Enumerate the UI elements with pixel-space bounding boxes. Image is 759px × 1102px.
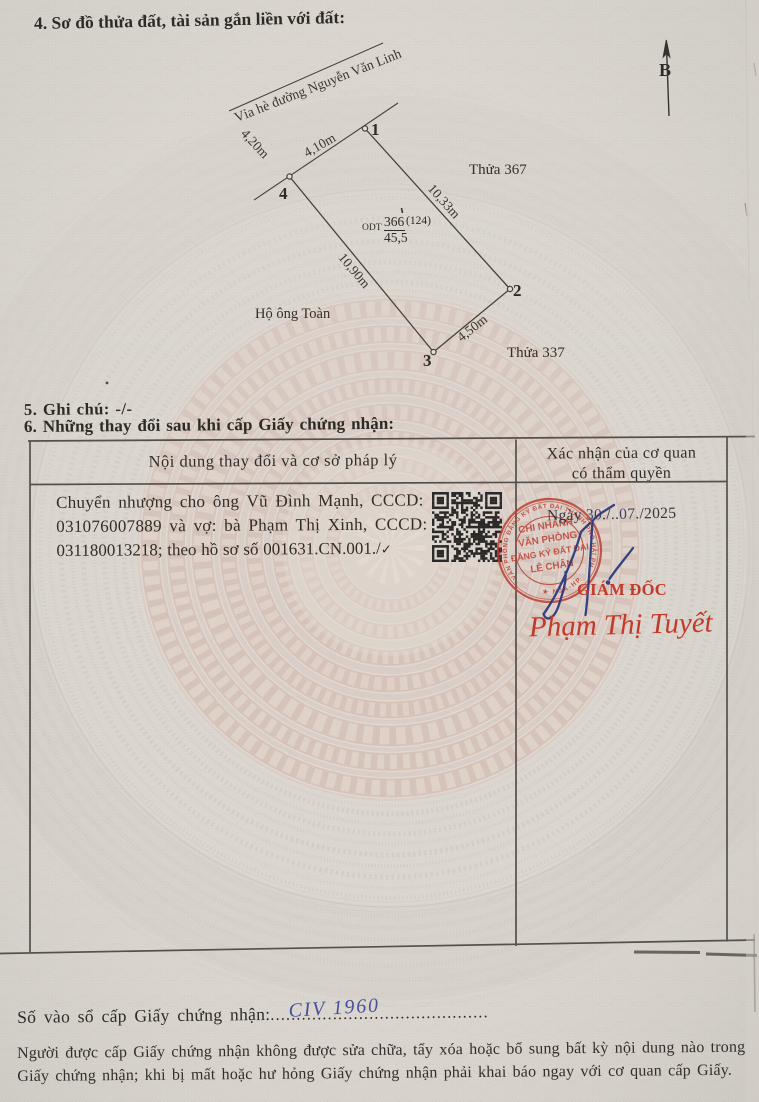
svg-text:VĂN PHÒNG ĐĂNG KÝ ĐẤT ĐAI THÀN: VĂN PHÒNG ĐĂNG KÝ ĐẤT ĐAI THÀNH PHỐ HẢI … [0,0,600,661]
svg-text:LÊ CHÂN: LÊ CHÂN [530,557,575,576]
